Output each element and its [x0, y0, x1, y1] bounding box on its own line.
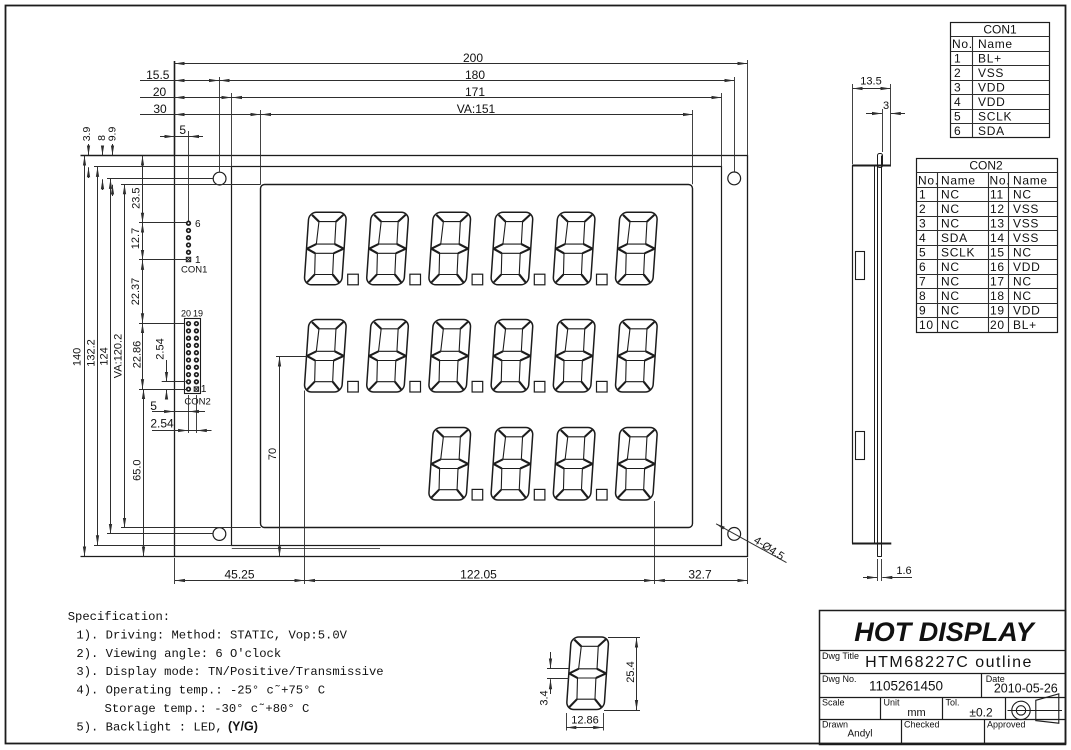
- svg-text:1: 1: [919, 188, 926, 202]
- svg-text:Name: Name: [978, 37, 1013, 51]
- svg-text:No.: No.: [918, 173, 939, 187]
- svg-text:124: 124: [98, 347, 110, 365]
- svg-text:122.05: 122.05: [460, 568, 497, 582]
- svg-text:14: 14: [990, 231, 1005, 245]
- svg-text:8: 8: [919, 289, 926, 303]
- svg-text:3: 3: [919, 217, 926, 231]
- svg-text:12: 12: [990, 202, 1005, 216]
- svg-text:BL+: BL+: [1013, 318, 1037, 332]
- svg-text:171: 171: [465, 85, 485, 99]
- svg-text:BL+: BL+: [978, 52, 1002, 66]
- svg-text:1: 1: [201, 384, 207, 395]
- svg-text:CON1: CON1: [181, 265, 207, 276]
- svg-text:±0.2: ±0.2: [969, 706, 993, 720]
- svg-text:NC: NC: [941, 202, 960, 216]
- svg-text:5). Backlight : LED,: 5). Backlight : LED,: [76, 720, 222, 734]
- svg-text:NC: NC: [1013, 289, 1032, 303]
- svg-text:13.5: 13.5: [860, 76, 881, 88]
- svg-text:3: 3: [883, 100, 889, 112]
- svg-text:Name: Name: [1013, 173, 1048, 187]
- svg-text:NC: NC: [941, 188, 960, 202]
- svg-text:22.37: 22.37: [130, 278, 142, 306]
- svg-text:3.4: 3.4: [539, 690, 551, 705]
- svg-text:2.54: 2.54: [155, 338, 167, 359]
- svg-text:Drawn: Drawn: [822, 720, 848, 730]
- svg-text:12.7: 12.7: [130, 228, 142, 249]
- svg-text:16: 16: [990, 260, 1005, 274]
- svg-text:11: 11: [990, 188, 1004, 202]
- svg-text:200: 200: [463, 51, 483, 65]
- svg-text:1.6: 1.6: [896, 565, 911, 577]
- svg-text:VA:151: VA:151: [457, 102, 496, 116]
- svg-text:Scale: Scale: [822, 698, 845, 708]
- svg-text:No.: No.: [990, 173, 1011, 187]
- svg-text:20: 20: [181, 309, 191, 319]
- svg-text:Andyl: Andyl: [847, 729, 872, 740]
- svg-text:9.9: 9.9: [107, 127, 119, 142]
- svg-text:30: 30: [153, 102, 167, 116]
- svg-text:2). Viewing angle: 6 O'clock: 2). Viewing angle: 6 O'clock: [76, 647, 281, 661]
- svg-text:12.86: 12.86: [571, 715, 599, 727]
- svg-text:NC: NC: [941, 304, 960, 318]
- svg-text:18: 18: [990, 289, 1005, 303]
- svg-text:6: 6: [195, 219, 201, 230]
- svg-text:65.0: 65.0: [132, 459, 144, 480]
- svg-text:19: 19: [990, 304, 1005, 318]
- svg-text:SCLK: SCLK: [978, 109, 1012, 123]
- svg-text:20: 20: [990, 318, 1005, 332]
- svg-text:NC: NC: [1013, 275, 1032, 289]
- svg-text:5: 5: [919, 246, 926, 260]
- svg-text:180: 180: [465, 68, 485, 82]
- svg-text:2: 2: [954, 66, 961, 80]
- svg-text:45.25: 45.25: [224, 568, 254, 582]
- svg-text:mm: mm: [907, 707, 925, 719]
- svg-text:VSS: VSS: [1013, 217, 1039, 231]
- svg-text:NC: NC: [941, 217, 960, 231]
- svg-text:No.: No.: [952, 37, 973, 51]
- svg-text:HOT DISPLAY: HOT DISPLAY: [854, 617, 1036, 647]
- svg-text:5: 5: [179, 123, 186, 137]
- svg-text:3). Display mode: TN/Positive/: 3). Display mode: TN/Positive/Transmissi…: [76, 665, 383, 679]
- svg-text:NC: NC: [1013, 188, 1032, 202]
- svg-text:140: 140: [72, 348, 84, 366]
- svg-text:1). Driving: Method: STATIC, V: 1). Driving: Method: STATIC, Vop:5.0V: [76, 628, 347, 642]
- svg-text:70: 70: [267, 448, 279, 460]
- svg-text:Dwg No.: Dwg No.: [822, 674, 857, 684]
- svg-text:13: 13: [990, 217, 1005, 231]
- svg-text:15.5: 15.5: [146, 68, 170, 82]
- svg-text:VSS: VSS: [1013, 231, 1039, 245]
- svg-text:Tol.: Tol.: [946, 698, 960, 708]
- svg-text:7: 7: [919, 275, 926, 289]
- svg-text:VDD: VDD: [978, 81, 1005, 95]
- svg-text:VDD: VDD: [1013, 260, 1040, 274]
- svg-text:22.86: 22.86: [132, 341, 144, 369]
- svg-text:HTM68227C outline: HTM68227C outline: [865, 654, 1033, 671]
- svg-text:2.54: 2.54: [150, 416, 174, 430]
- svg-text:4-Ø4.5: 4-Ø4.5: [751, 534, 786, 562]
- svg-text:VA:120.2: VA:120.2: [113, 334, 125, 378]
- svg-text:VSS: VSS: [1013, 202, 1039, 216]
- svg-text:Storage temp.: -30° c˜+80° C: Storage temp.: -30° c˜+80° C: [105, 702, 310, 716]
- svg-text:NC: NC: [941, 289, 960, 303]
- svg-text:VSS: VSS: [978, 66, 1004, 80]
- svg-text:CON2: CON2: [969, 159, 1003, 173]
- svg-text:VDD: VDD: [978, 95, 1005, 109]
- svg-text:5: 5: [954, 109, 961, 123]
- svg-text:NC: NC: [941, 260, 960, 274]
- svg-text:SDA: SDA: [978, 124, 1005, 138]
- svg-text:23.5: 23.5: [131, 187, 143, 208]
- svg-text:Dwg Title: Dwg Title: [822, 651, 859, 661]
- svg-text:Approved: Approved: [987, 720, 1026, 730]
- svg-text:SDA: SDA: [941, 231, 968, 245]
- svg-text:3: 3: [954, 81, 961, 95]
- svg-text:NC: NC: [941, 275, 960, 289]
- svg-text:(Y/G): (Y/G): [228, 719, 258, 733]
- svg-text:CON1: CON1: [983, 23, 1017, 37]
- svg-text:6: 6: [919, 260, 926, 274]
- svg-text:32.7: 32.7: [688, 568, 712, 582]
- svg-text:19: 19: [193, 309, 203, 319]
- svg-text:Checked: Checked: [904, 720, 940, 730]
- svg-text:SCLK: SCLK: [941, 246, 975, 260]
- svg-text:10: 10: [919, 318, 934, 332]
- svg-text:Name: Name: [941, 173, 976, 187]
- svg-text:NC: NC: [941, 318, 960, 332]
- svg-text:4). Operating temp.: -25° c˜+7: 4). Operating temp.: -25° c˜+75° C: [76, 684, 325, 698]
- svg-text:17: 17: [990, 275, 1005, 289]
- svg-text:1105261450: 1105261450: [869, 679, 943, 694]
- svg-text:NC: NC: [1013, 246, 1032, 260]
- svg-text:20: 20: [153, 85, 167, 99]
- svg-text:132.2: 132.2: [86, 339, 98, 367]
- svg-text:2010-05-26: 2010-05-26: [994, 682, 1058, 696]
- svg-text:15: 15: [990, 246, 1005, 260]
- svg-text:VDD: VDD: [1013, 304, 1040, 318]
- svg-text:Unit: Unit: [884, 698, 901, 708]
- svg-text:2: 2: [919, 202, 926, 216]
- svg-text:3.9: 3.9: [81, 127, 93, 142]
- svg-text:5: 5: [150, 399, 157, 413]
- svg-text:4: 4: [954, 95, 961, 109]
- svg-text:Specification:: Specification:: [68, 610, 170, 624]
- svg-text:4: 4: [919, 231, 926, 245]
- svg-text:6: 6: [954, 124, 961, 138]
- svg-text:1: 1: [954, 52, 961, 66]
- svg-text:25.4: 25.4: [625, 661, 637, 682]
- svg-text:9: 9: [919, 304, 926, 318]
